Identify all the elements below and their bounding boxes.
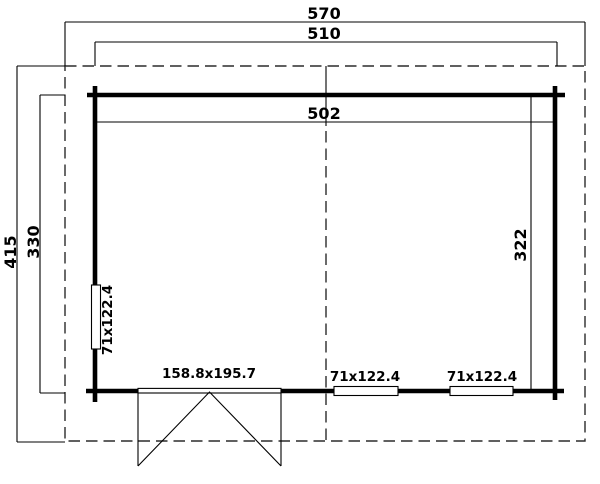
floor-plan-drawing: 570 510 502 415 330 322 71x122.4 158.8x1… xyxy=(0,0,600,484)
label-roof-depth: 415 xyxy=(1,235,20,268)
label-interior-width: 502 xyxy=(307,104,340,123)
dimension-line-exterior-depth xyxy=(40,95,65,393)
label-interior-depth: 322 xyxy=(511,228,530,261)
label-door-size: 158.8x195.7 xyxy=(162,366,256,382)
door-swing xyxy=(138,392,281,466)
label-exterior-depth: 330 xyxy=(24,225,43,258)
label-exterior-width: 510 xyxy=(307,24,340,43)
floor-plan-canvas: 570 510 502 415 330 322 71x122.4 158.8x1… xyxy=(0,0,600,484)
label-roof-width: 570 xyxy=(307,4,340,23)
label-left-window-size: 71x122.4 xyxy=(100,285,116,355)
front-window-2 xyxy=(450,387,513,396)
door-leaves xyxy=(138,393,281,466)
front-window-1 xyxy=(334,387,398,396)
label-front-window-1-size: 71x122.4 xyxy=(330,369,400,385)
dimension-line-exterior-width xyxy=(95,42,557,66)
label-front-window-2-size: 71x122.4 xyxy=(447,369,517,385)
